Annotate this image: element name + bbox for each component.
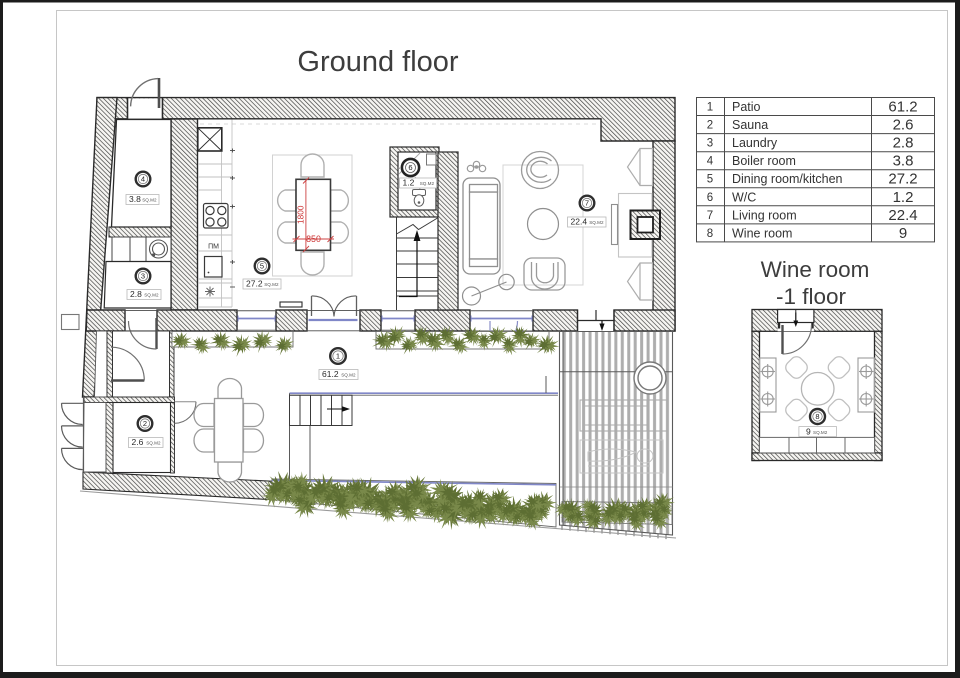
svg-text:2.6: 2.6 (132, 437, 144, 447)
svg-text:3.8: 3.8 (129, 194, 141, 204)
svg-text:9: 9 (806, 427, 811, 437)
svg-text:2.6: 2.6 (893, 117, 914, 134)
svg-text:Ground floor: Ground floor (297, 46, 459, 78)
svg-text:9: 9 (899, 225, 907, 242)
svg-text:8: 8 (707, 228, 713, 240)
svg-text:SQ.M2: SQ.M2 (813, 430, 828, 435)
svg-text:6: 6 (707, 192, 713, 204)
svg-text:SQ.M2: SQ.M2 (341, 373, 356, 378)
svg-text:27.2: 27.2 (888, 171, 917, 188)
svg-text:6: 6 (408, 163, 412, 172)
svg-text:SQ.M2: SQ.M2 (589, 220, 604, 225)
svg-text:SQ.M2: SQ.M2 (146, 441, 161, 446)
svg-text:27.2: 27.2 (246, 279, 263, 289)
svg-text:Wine room: Wine room (732, 226, 792, 240)
svg-text:1800: 1800 (296, 205, 306, 224)
svg-text:61.2: 61.2 (322, 369, 339, 379)
svg-text:3: 3 (707, 138, 713, 150)
svg-text:ПМ: ПМ (208, 244, 219, 251)
svg-text:Boiler room: Boiler room (732, 154, 796, 168)
svg-text:1: 1 (707, 102, 713, 114)
svg-text:2.8: 2.8 (130, 289, 142, 299)
svg-text:22.4: 22.4 (571, 217, 588, 227)
svg-text:1.2: 1.2 (403, 178, 415, 188)
svg-text:Sauna: Sauna (732, 118, 768, 132)
svg-text:2: 2 (707, 120, 713, 132)
svg-text:3.8: 3.8 (893, 153, 914, 170)
svg-text:61.2: 61.2 (888, 99, 917, 116)
svg-text:2: 2 (143, 419, 147, 428)
svg-text:22.4: 22.4 (888, 207, 917, 224)
svg-text:SQ.M2: SQ.M2 (142, 198, 157, 203)
svg-text:4: 4 (141, 175, 145, 184)
svg-text:Dining room/kitchen: Dining room/kitchen (732, 172, 843, 186)
svg-text:Living room: Living room (732, 208, 797, 222)
svg-text:W/C: W/C (732, 190, 756, 204)
svg-text:SQ.M2: SQ.M2 (144, 293, 159, 298)
svg-text:1: 1 (336, 352, 340, 361)
svg-text:7: 7 (707, 210, 713, 222)
svg-text:850: 850 (306, 234, 321, 244)
svg-text:Wine room: Wine room (761, 257, 870, 282)
svg-text:5: 5 (707, 174, 713, 186)
svg-text:2.8: 2.8 (893, 135, 914, 152)
svg-text:SQ.M2: SQ.M2 (264, 282, 279, 287)
svg-text:-1 floor: -1 floor (776, 284, 847, 309)
svg-text:1.2: 1.2 (893, 189, 914, 206)
svg-text:4: 4 (707, 156, 714, 168)
svg-text:SQ.M2: SQ.M2 (420, 181, 435, 186)
svg-text:7: 7 (585, 199, 589, 208)
svg-text:Laundry: Laundry (732, 136, 778, 150)
svg-text:8: 8 (815, 412, 819, 421)
svg-text:3: 3 (141, 272, 145, 281)
svg-text:Patio: Patio (732, 100, 761, 114)
svg-text:5: 5 (260, 262, 264, 271)
